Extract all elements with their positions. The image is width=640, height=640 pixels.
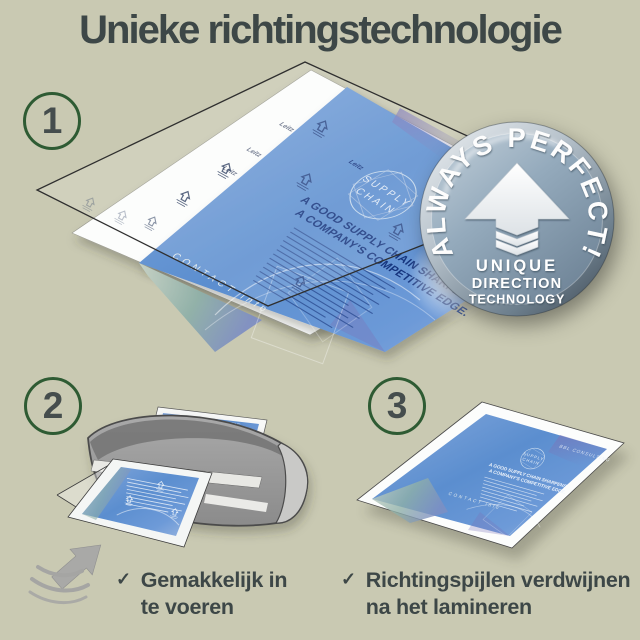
infographic: Leitz Leitz Leitz Leitz BBL CONSULTING S… xyxy=(0,0,640,640)
caption-step3-text: Richtingspijlen verdwijnen na het lamine… xyxy=(366,567,631,621)
checkmark-icon: ✓ xyxy=(116,567,131,621)
step-1-digit: 1 xyxy=(42,100,63,142)
step-2-digit: 2 xyxy=(43,385,64,427)
exiting-pouch xyxy=(57,459,212,547)
caption-line: Gemakkelijk in xyxy=(141,568,287,592)
udt-badge: ALWAYS PERFECT! UNIQUE DIRECTION TECHNOL… xyxy=(417,119,617,319)
caption-line: na het lamineren xyxy=(366,595,532,619)
feed-arrow-icon xyxy=(30,532,112,602)
badge-art: ALWAYS PERFECT! UNIQUE DIRECTION TECHNOL… xyxy=(417,119,617,319)
page-title: Unieke richtingstechnologie xyxy=(0,8,640,53)
caption-line: Richtingspijlen verdwijnen xyxy=(366,568,631,592)
badge-line-technology: TECHNOLOGY xyxy=(469,293,565,307)
badge-line-direction: DIRECTION xyxy=(472,276,563,292)
step-number-1: 1 xyxy=(23,92,81,150)
caption-line: te voeren xyxy=(141,595,234,619)
badge-line-unique: UNIQUE xyxy=(476,257,558,275)
caption-step3: ✓ Richtingspijlen verdwijnen na het lami… xyxy=(341,567,630,621)
step-number-2: 2 xyxy=(24,377,82,435)
caption-step2: ✓ Gemakkelijk in te voeren xyxy=(116,567,287,621)
step-number-3: 3 xyxy=(368,377,426,435)
illustration-canvas: Leitz Leitz Leitz Leitz BBL CONSULTING S… xyxy=(0,0,640,640)
caption-step2-text: Gemakkelijk in te voeren xyxy=(141,567,287,621)
step-3-digit: 3 xyxy=(387,385,408,427)
checkmark-icon: ✓ xyxy=(341,567,356,621)
